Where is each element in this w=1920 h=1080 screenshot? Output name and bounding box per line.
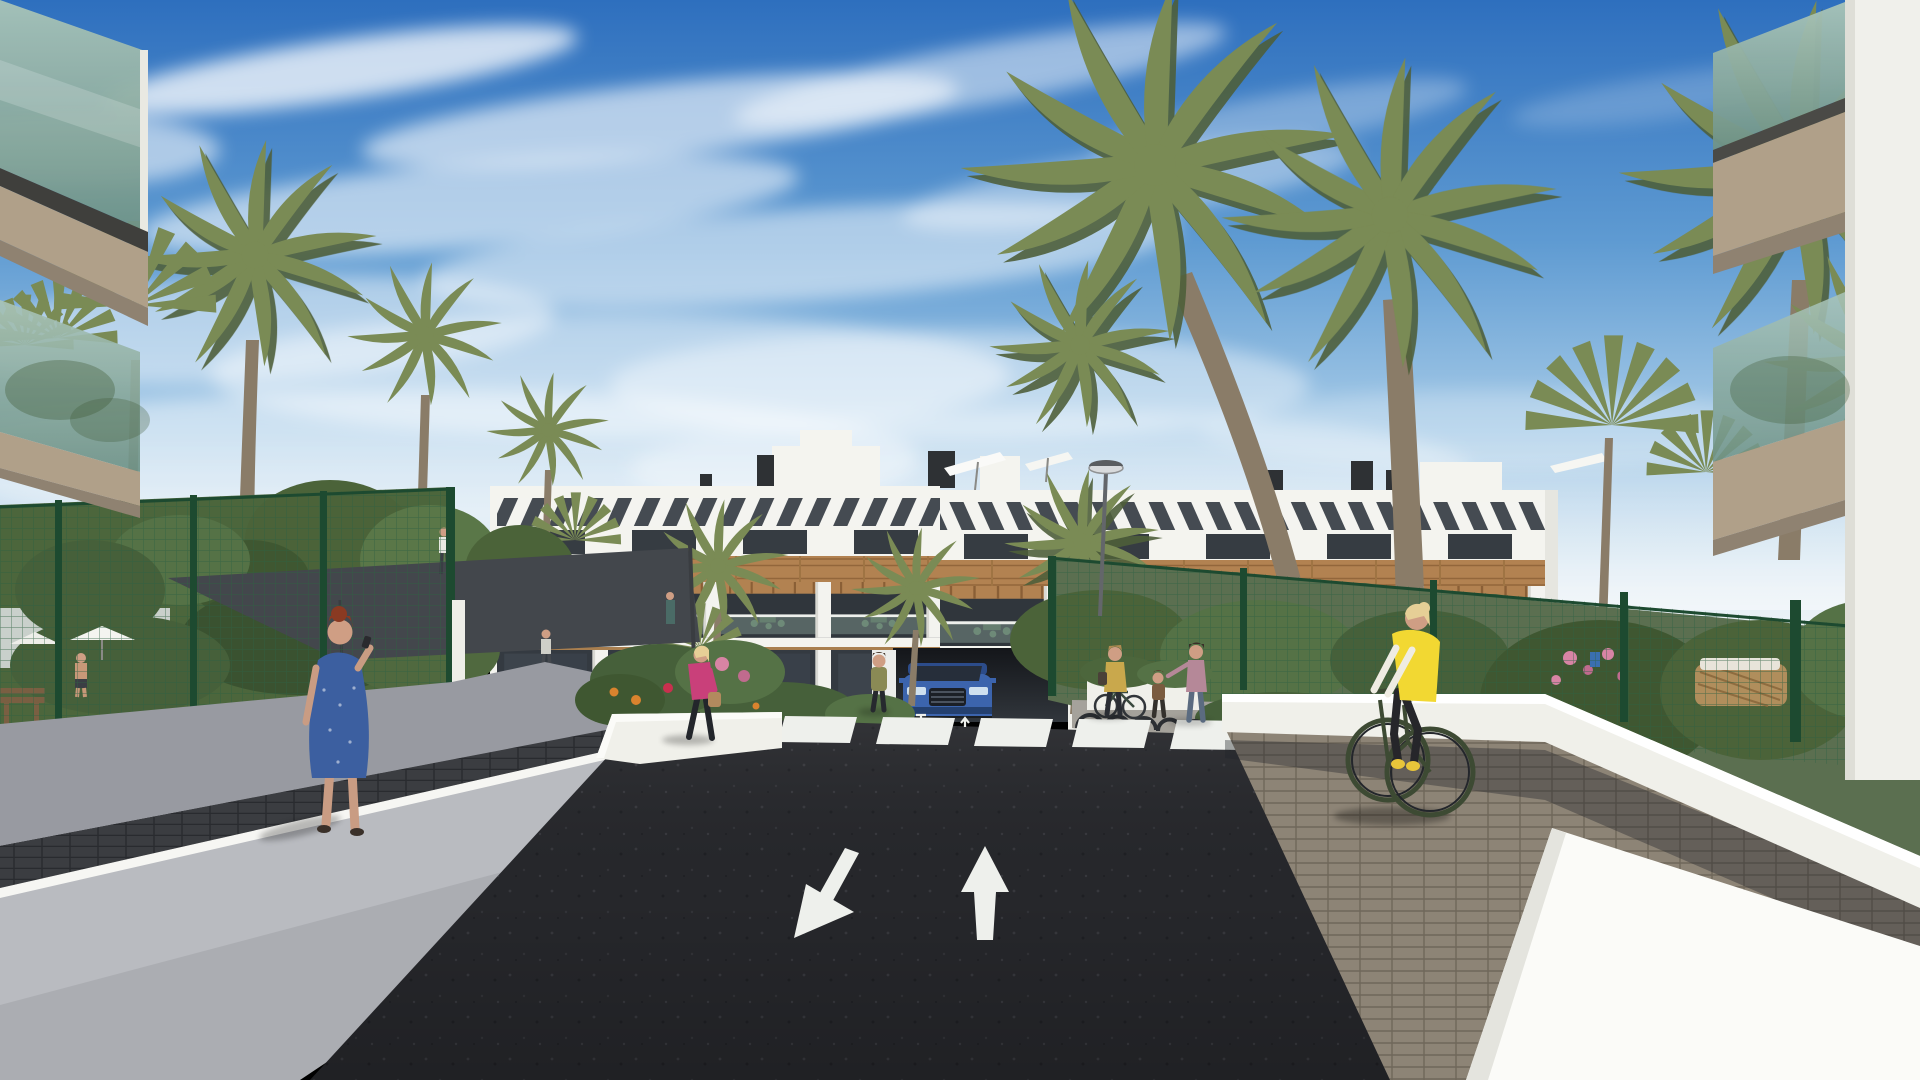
render-image xyxy=(0,0,1920,1080)
gate-post xyxy=(452,600,465,684)
right-corner-column xyxy=(1845,0,1920,780)
balcony-figure xyxy=(666,592,675,624)
yellow-vest xyxy=(1392,630,1440,702)
foreground-balcony-left xyxy=(0,0,150,518)
handbag xyxy=(708,692,721,707)
suv-windshield xyxy=(913,666,982,681)
